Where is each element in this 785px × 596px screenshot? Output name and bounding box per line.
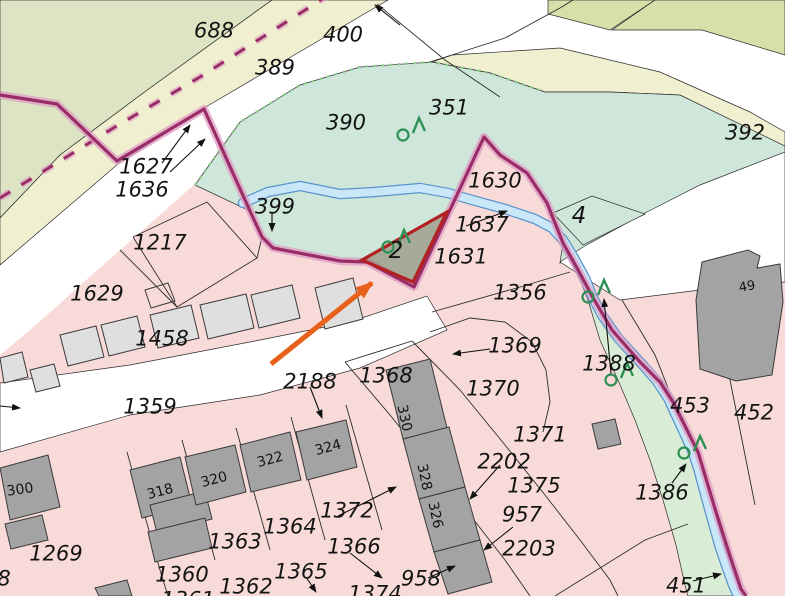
parcel-label-452: 452 [734, 400, 774, 424]
parcel-label-1388: 1388 [582, 351, 635, 375]
parcel-label-958: 958 [401, 566, 441, 590]
parcel-label-8: 8 [0, 566, 11, 590]
parcel-label-2: 2 [389, 238, 404, 264]
parcel-label-453: 453 [670, 393, 710, 417]
parcel-label-1371: 1371 [513, 422, 566, 446]
parcel-label-1366: 1366 [327, 534, 380, 558]
parcel-label-1627: 1627 [119, 154, 173, 178]
parcel-label-1374: 1374 [348, 581, 401, 596]
parcel-label-1637: 1637 [455, 212, 509, 236]
parcel-label-390: 390 [326, 110, 366, 134]
parcel-label-1631: 1631 [434, 244, 487, 268]
parcel-label-1356: 1356 [493, 280, 546, 304]
parcel-label-389: 389 [255, 55, 295, 79]
parcel-label-1458: 1458 [135, 326, 188, 350]
parcel-label-2203: 2203 [502, 536, 555, 560]
parcel-label-400: 400 [323, 22, 363, 46]
cadastral-map[interactable]: 6884003893513903921627163016363994163712… [0, 0, 785, 596]
parcel-label-2202: 2202 [477, 449, 530, 473]
parcel-label-399: 399 [255, 194, 295, 218]
parcel-label-1629: 1629 [70, 281, 123, 305]
parcel-label-1363: 1363 [208, 529, 261, 553]
parcel-label-1269: 1269 [29, 541, 82, 565]
parcel-label-1368: 1368 [359, 363, 412, 387]
parcel-label-1360: 1360 [155, 562, 208, 586]
parcel-label-957: 957 [502, 502, 543, 526]
parcel-label-1369: 1369 [488, 333, 541, 357]
parcel-label-4: 4 [572, 203, 587, 229]
parcel-label-1370: 1370 [466, 376, 519, 400]
parcel-label-2188: 2188 [283, 369, 336, 393]
parcel-label-1362: 1362 [219, 574, 272, 596]
map-viewport[interactable]: 6884003893513903921627163016363994163712… [0, 0, 785, 596]
parcel-label-688: 688 [194, 18, 234, 42]
parcel-label-1386: 1386 [635, 480, 688, 504]
parcel-label-1630: 1630 [468, 168, 521, 192]
parcel-label-451: 451 [666, 573, 706, 596]
parcel-label-1375: 1375 [507, 473, 560, 497]
parcel-label-1372: 1372 [320, 498, 373, 522]
parcel-label-1217: 1217 [133, 230, 187, 254]
parcel-label-1365: 1365 [274, 559, 327, 583]
parcel-label-351: 351 [429, 95, 469, 119]
parcel-label-392: 392 [725, 120, 765, 144]
parcel-label-1361: 1361 [161, 587, 214, 596]
parcel-label-49: 49 [738, 278, 757, 296]
building-49 [696, 250, 783, 381]
parcel-label-1364: 1364 [263, 514, 316, 538]
parcel-label-1636: 1636 [115, 177, 168, 201]
parcel-label-1359: 1359 [123, 394, 176, 418]
